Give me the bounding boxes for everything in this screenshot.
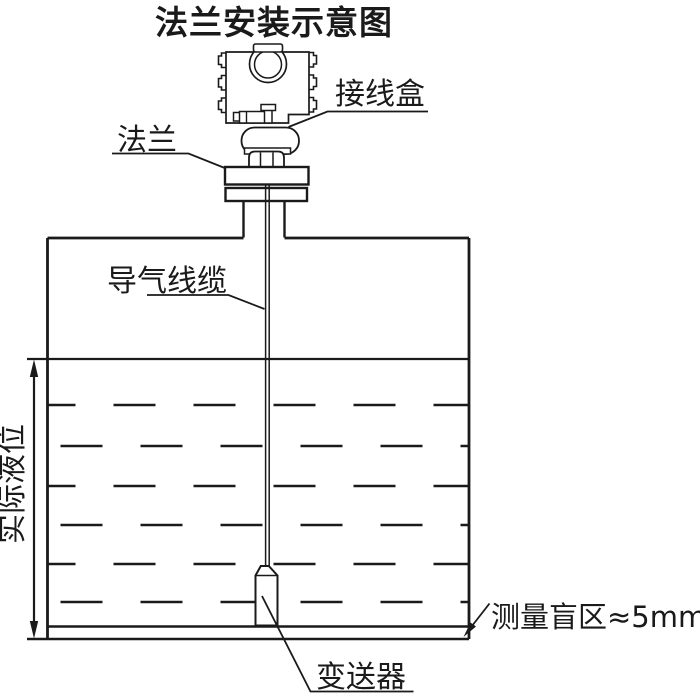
- terminal-stem-cap: [261, 105, 276, 111]
- tank: [27, 238, 469, 639]
- junction-box-label: 接线盒: [335, 77, 425, 112]
- diagram-canvas: 法兰安装示意图: [0, 0, 700, 700]
- flange-installation-figure: 法兰安装示意图: [0, 0, 700, 700]
- transmitter-label: 变送器: [316, 660, 406, 695]
- diagram-title: 法兰安装示意图: [155, 3, 393, 42]
- level-dimension: 实际液位: [0, 360, 38, 639]
- hex-nut: [249, 152, 284, 168]
- vent-cable: [266, 185, 270, 567]
- arrow-down-icon: [30, 621, 38, 639]
- flange-label: 法兰: [117, 123, 177, 158]
- actual-level-label: 实际液位: [0, 424, 30, 544]
- vent-cable-label: 导气线缆: [107, 264, 227, 299]
- transmitter-housing: [219, 44, 317, 167]
- arrow-up-icon: [30, 360, 38, 378]
- blind-zone-pointer: [464, 604, 490, 638]
- flange-assembly: [225, 167, 309, 238]
- blind-zone-label: 测量盲区≈5mm: [491, 600, 700, 634]
- probe: [256, 566, 278, 626]
- housing-cap-top: [254, 44, 283, 52]
- flange-plate: [225, 167, 309, 185]
- nozzle-neck: [244, 201, 285, 238]
